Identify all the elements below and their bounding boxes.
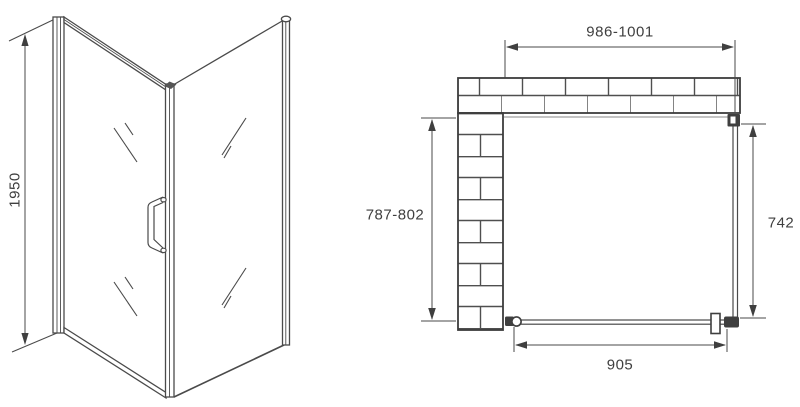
plan-side-panel bbox=[733, 121, 738, 318]
plan-corner-connector bbox=[724, 317, 739, 328]
plan-door-dim-label: 905 bbox=[607, 357, 634, 374]
front-height-dim-label: 1950 bbox=[7, 172, 24, 207]
front-left-wall-profile bbox=[53, 17, 64, 333]
front-side-glass-marks bbox=[222, 118, 246, 308]
front-door-glass-marks bbox=[114, 123, 137, 316]
front-door-bottom-rail bbox=[64, 328, 166, 399]
plan-depth-dim-label: 787-802 bbox=[366, 207, 425, 224]
shower-enclosure-technical-drawing: 1950 986-1001 787-802 742 905 bbox=[0, 0, 800, 407]
plan-width-dim-label: 986-1001 bbox=[586, 24, 653, 41]
front-side-panel bbox=[174, 16, 291, 397]
plan-view-drawing bbox=[421, 40, 766, 352]
front-door-top-rail bbox=[64, 17, 166, 90]
plan-side-dimension bbox=[740, 124, 766, 318]
drawing-svg bbox=[0, 0, 800, 407]
plan-door-knob bbox=[711, 314, 720, 334]
plan-brick-walls bbox=[458, 78, 740, 330]
plan-side-dim-label: 742 bbox=[768, 215, 795, 232]
front-view-drawing bbox=[9, 16, 291, 398]
plan-wall-bracket bbox=[728, 114, 741, 127]
plan-door-panel bbox=[521, 320, 726, 324]
plan-door-hinge bbox=[505, 317, 521, 327]
plan-door-dimension bbox=[514, 327, 727, 352]
front-door-handle bbox=[148, 197, 166, 253]
plan-depth-dimension bbox=[421, 118, 456, 321]
front-corner-post bbox=[164, 82, 177, 398]
